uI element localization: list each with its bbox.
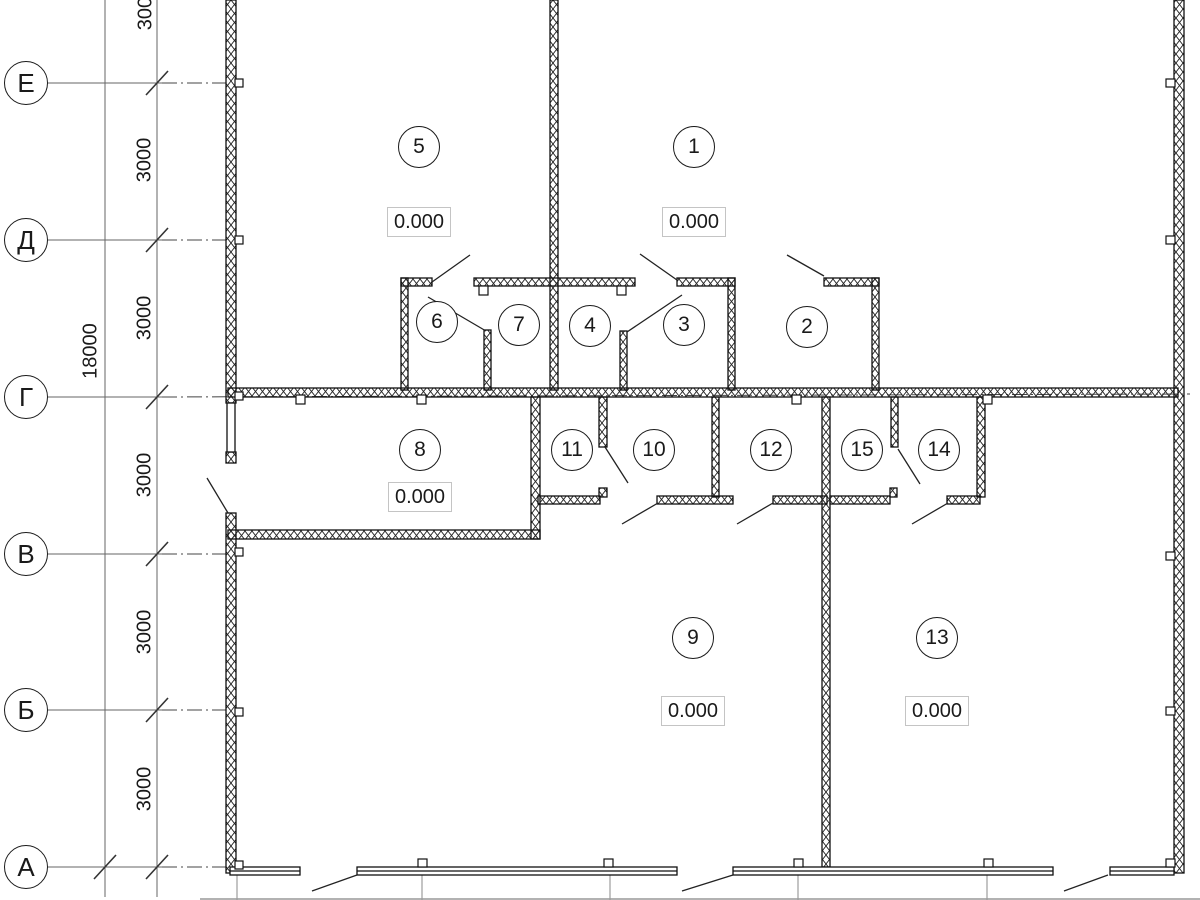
room-bubble-4: 4 [569,305,611,347]
dimension-interval-ba: 3000 [134,767,157,812]
elevation-value: 0.000 [912,700,962,723]
axis-bubble-a: А [4,845,48,889]
room-bubble-10: 10 [633,429,675,471]
axis-label: Б [17,695,34,726]
dimension-interval-top: 3000 [135,0,158,30]
room-bubble-6: 6 [416,301,458,343]
dimension-interval-dg: 3000 [134,296,157,341]
room-number: 7 [513,313,525,337]
room-bubble-2: 2 [786,306,828,348]
axis-bubble-g: Г [4,375,48,419]
room-bubble-9: 9 [672,617,714,659]
room-bubble-15: 15 [841,429,883,471]
dimension-overall: 18000 [80,323,103,379]
elevation-room-9: 0.000 [661,696,725,726]
axis-label: В [17,539,34,570]
room-number: 11 [561,438,583,462]
floor-plan-drawing [0,0,1200,900]
axis-dashdot-lines [162,83,1190,867]
room-number: 13 [925,626,948,650]
room-number: 2 [801,315,813,339]
elevation-room-13: 0.000 [905,696,969,726]
axis-label: А [17,852,34,883]
axis-label: Г [19,382,33,413]
room-bubble-5: 5 [398,126,440,168]
room-number: 3 [678,313,690,337]
room-number: 6 [431,310,443,334]
room-bubble-11: 11 [551,429,593,471]
floor-plan: Е Д Г В Б А 3000 3000 3000 3000 3000 300… [0,0,1200,900]
elevation-room-8: 0.000 [388,482,452,512]
room-number: 1 [688,135,700,159]
axis-label: Д [17,225,35,256]
elevation-room-5: 0.000 [387,207,451,237]
elevation-value: 0.000 [395,486,445,509]
room-bubble-1: 1 [673,126,715,168]
room-bubble-8: 8 [399,429,441,471]
axis-bubble-b: Б [4,688,48,732]
elevation-room-1: 0.000 [662,207,726,237]
room-number: 15 [850,438,873,462]
room-number: 4 [584,314,596,338]
room-number: 12 [759,438,782,462]
dimension-lines [48,0,1200,900]
room-number: 5 [413,135,425,159]
door-leaves [207,254,1108,891]
axis-bubble-d: Д [4,218,48,262]
room-number: 14 [927,438,950,462]
room-number: 8 [414,438,426,462]
room-bubble-14: 14 [918,429,960,471]
room-bubble-7: 7 [498,304,540,346]
axis-label: Е [17,68,34,99]
dimension-interval-gv: 3000 [134,453,157,498]
dimension-interval-ed: 3000 [134,138,157,183]
axis-bubble-e: Е [4,61,48,105]
elevation-value: 0.000 [668,700,718,723]
axis-bubble-v: В [4,532,48,576]
elevation-value: 0.000 [669,211,719,234]
dimension-interval-vb: 3000 [134,610,157,655]
axis-wall-markers [235,79,1175,869]
room-bubble-12: 12 [750,429,792,471]
room-number: 10 [642,438,665,462]
room-bubble-3: 3 [663,304,705,346]
room-number: 9 [687,626,699,650]
room-bubble-13: 13 [916,617,958,659]
elevation-value: 0.000 [394,211,444,234]
